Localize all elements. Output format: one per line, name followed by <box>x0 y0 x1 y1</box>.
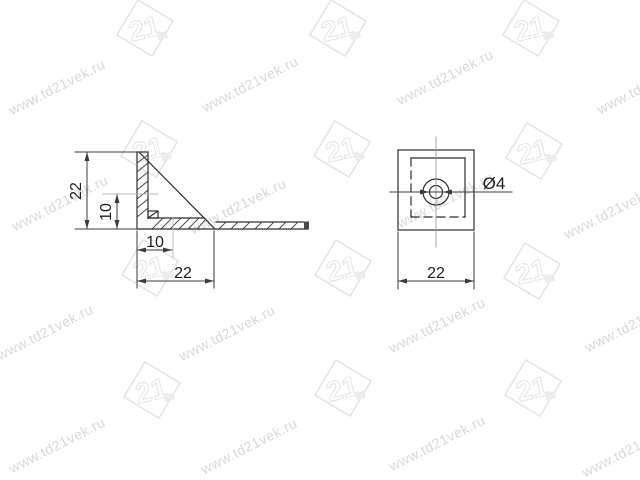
side-inner-height-label: 10 <box>98 203 115 221</box>
side-view-dimensions <box>75 152 214 288</box>
flange-end-cap <box>304 222 309 230</box>
side-inner-width-label: 10 <box>146 234 164 251</box>
hole-diameter-label: Ø4 <box>483 174 506 193</box>
side-width-label: 22 <box>174 265 192 282</box>
technical-drawing: 22 10 10 22 <box>0 0 640 480</box>
top-width-label: 22 <box>427 265 445 282</box>
gusset-hypotenuse <box>140 153 214 228</box>
side-view: 22 10 10 22 <box>68 152 309 288</box>
side-height-label: 22 <box>68 182 85 200</box>
top-view: Ø4 22 <box>390 137 512 289</box>
side-view-outline <box>137 152 309 229</box>
